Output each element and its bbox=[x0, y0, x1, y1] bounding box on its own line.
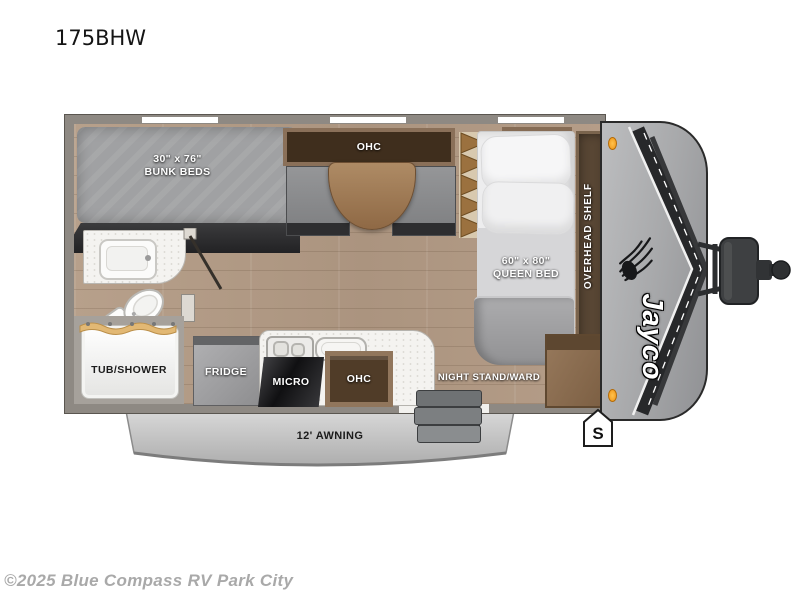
night-stand-cabinet bbox=[545, 334, 605, 408]
bathroom-door bbox=[180, 228, 230, 302]
micro-label: MICRO bbox=[258, 357, 324, 407]
kitchen-overhead-cabinet: OHC bbox=[325, 351, 393, 407]
spare-location-marker: S bbox=[580, 406, 616, 452]
night-stand-label: NIGHT STAND/WARD bbox=[430, 371, 548, 384]
window bbox=[142, 117, 218, 123]
microwave: MICRO bbox=[258, 357, 324, 407]
window bbox=[498, 117, 564, 123]
bathroom-sink bbox=[99, 239, 157, 280]
queen-bed-name: QUEEN BED bbox=[480, 268, 572, 281]
bunk-bed-label: 30" x 76" BUNK BEDS bbox=[95, 153, 260, 179]
bunk-bed-size: 30" x 76" bbox=[95, 153, 260, 166]
fridge-label: FRIDGE bbox=[193, 366, 259, 379]
entry-steps bbox=[414, 388, 486, 446]
front-cap: Jayco bbox=[600, 121, 708, 421]
faucet-icon bbox=[145, 255, 151, 261]
copyright-text: ©2025 Blue Compass RV Park City bbox=[4, 571, 293, 591]
dinette-ohc-label: OHC bbox=[287, 132, 451, 162]
bunk-bed-name: BUNK BEDS bbox=[95, 166, 260, 179]
dinette-overhead-cabinet: OHC bbox=[283, 128, 455, 166]
floorplan-page: 175BHW 12' AWNING 30" x 76" BUNK BEDS OH… bbox=[0, 0, 800, 600]
awning-label: 12' AWNING bbox=[250, 430, 410, 443]
window bbox=[330, 117, 406, 123]
marker-light-icon bbox=[608, 137, 617, 150]
jayco-bird-icon bbox=[615, 225, 657, 286]
tub-shower-label: TUB/SHOWER bbox=[80, 364, 178, 377]
marker-light-icon bbox=[608, 389, 617, 402]
pillow bbox=[481, 181, 574, 235]
kitchen-ohc-label: OHC bbox=[330, 356, 388, 402]
queen-bed-size: 60" x 80" bbox=[480, 255, 572, 268]
spare-marker-label: S bbox=[592, 424, 603, 443]
model-number: 175BHW bbox=[55, 26, 146, 50]
overhead-shelf-label: OVERHEAD SHELF bbox=[582, 136, 596, 336]
brand-logo-text: Jayco bbox=[632, 281, 668, 393]
queen-bed-label: 60" x 80" QUEEN BED bbox=[480, 255, 572, 281]
hitch bbox=[695, 230, 795, 320]
shower-curtain bbox=[78, 318, 180, 338]
